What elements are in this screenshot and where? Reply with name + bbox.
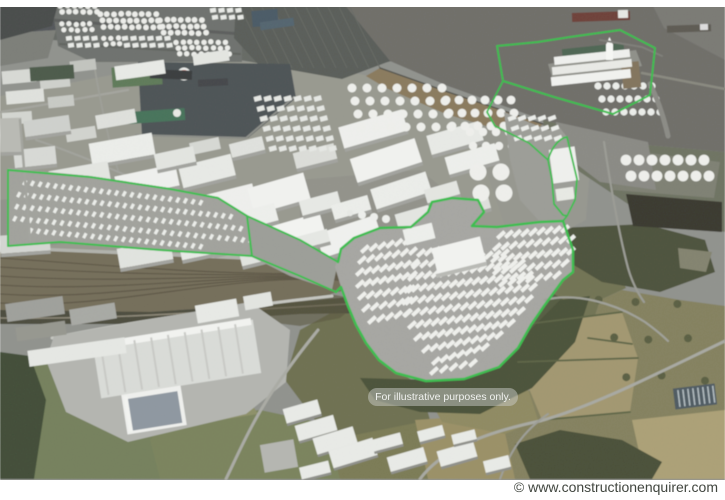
svg-text:© www.constructionenquirer.com: © www.constructionenquirer.com bbox=[514, 479, 718, 495]
svg-text:For illustrative purposes only: For illustrative purposes only. bbox=[375, 391, 511, 403]
